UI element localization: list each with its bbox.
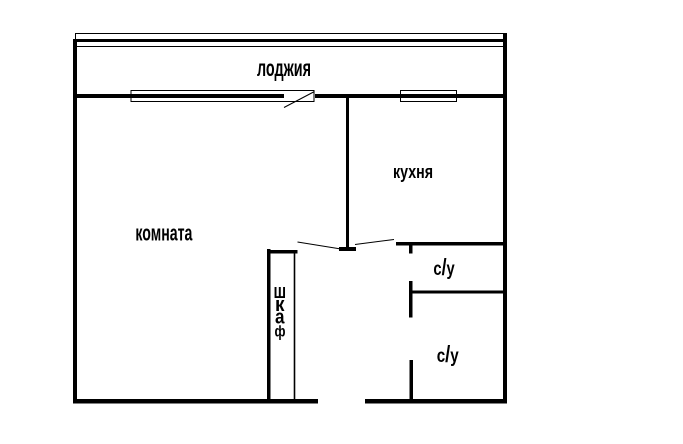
svg-text:лоджия: лоджия: [257, 55, 311, 81]
svg-text:ф: ф: [275, 324, 286, 341]
svg-text:кухня: кухня: [393, 162, 433, 182]
svg-text:комната: комната: [135, 221, 192, 246]
